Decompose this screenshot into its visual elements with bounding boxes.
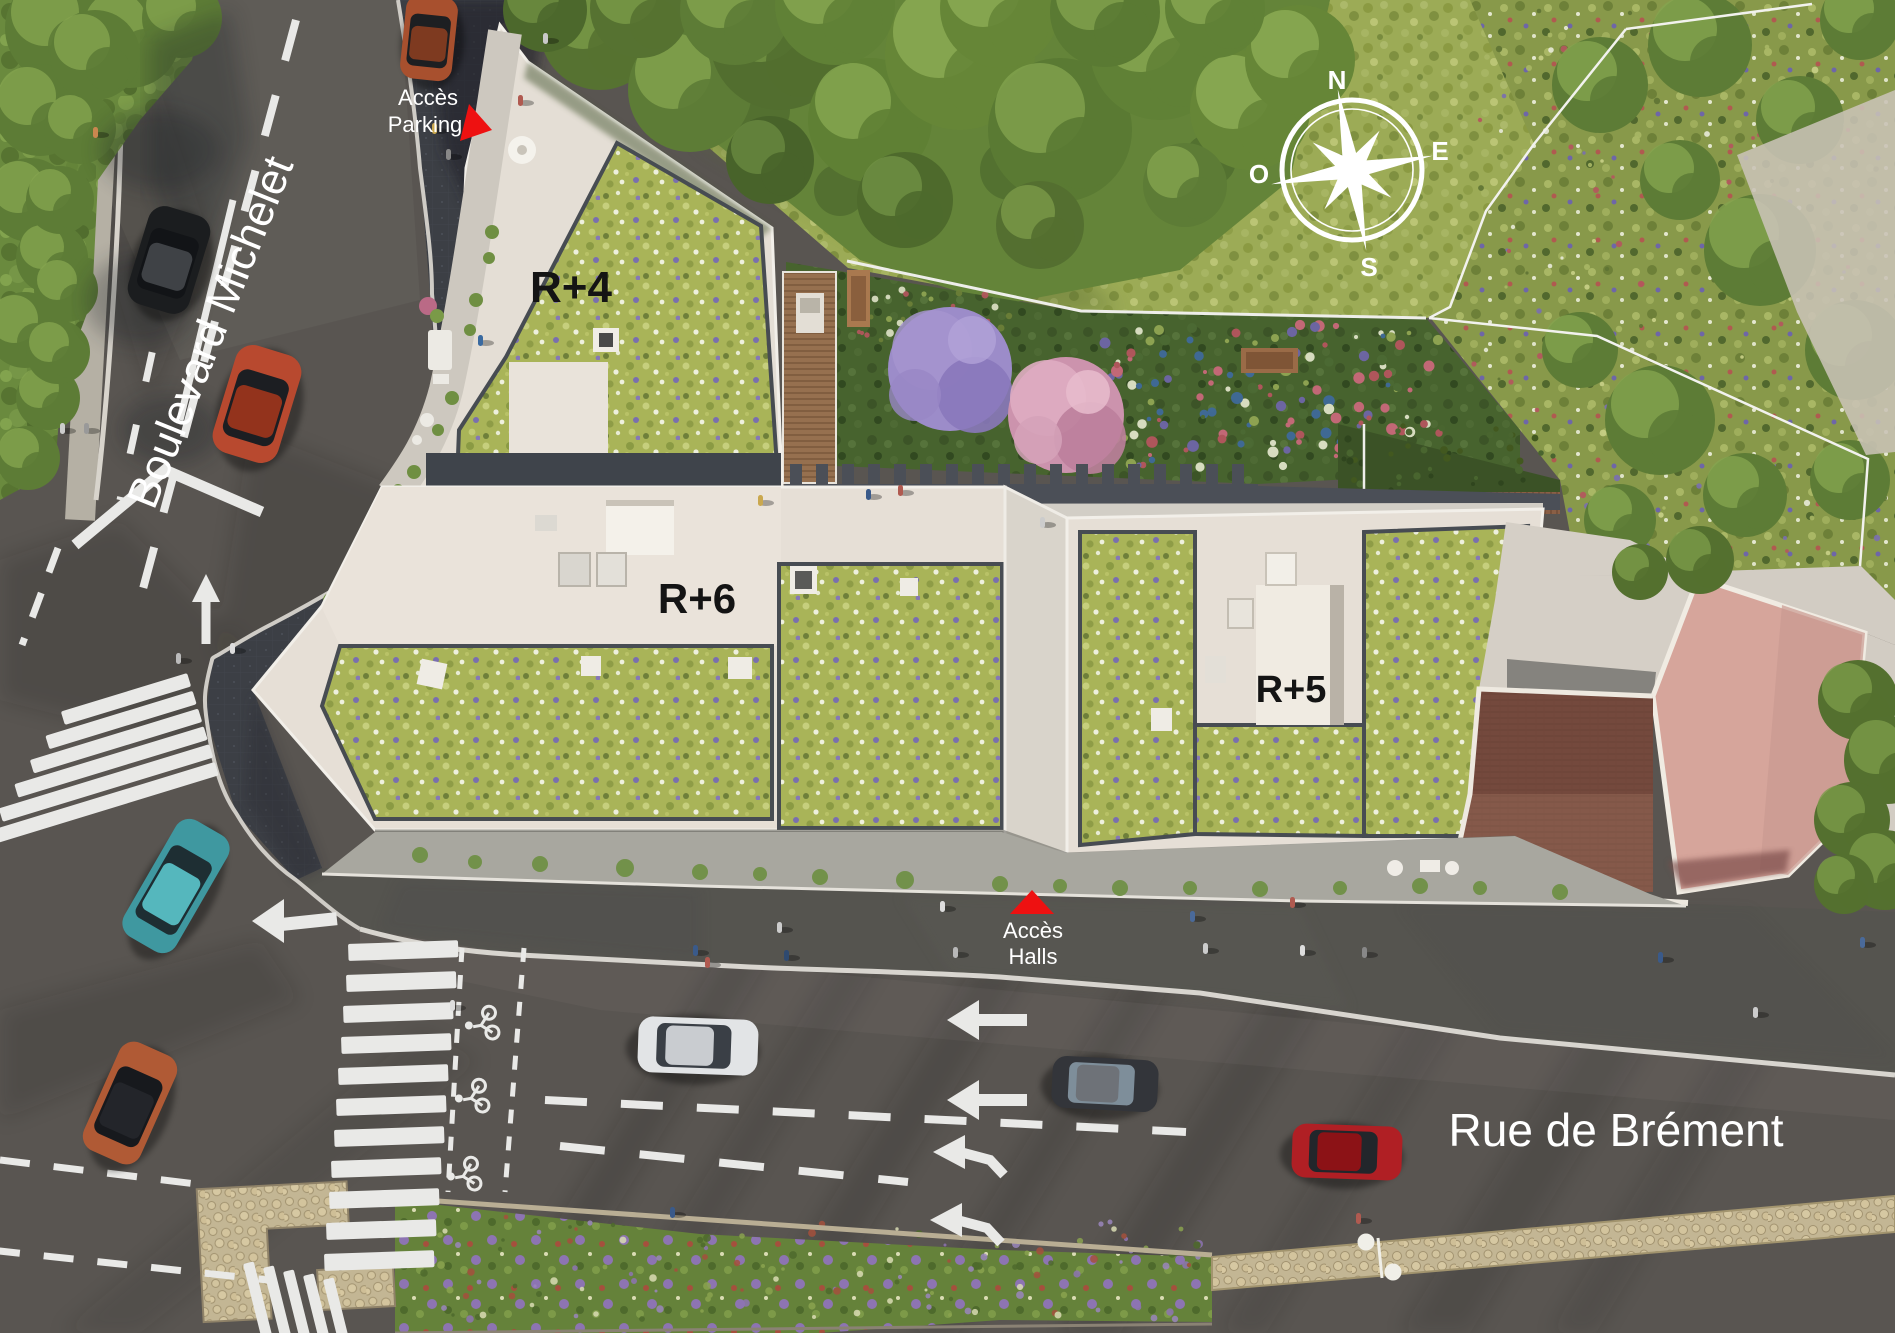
- svg-text:Halls: Halls: [1009, 944, 1058, 969]
- svg-text:Accès: Accès: [398, 85, 458, 110]
- svg-text:R+4: R+4: [530, 263, 612, 312]
- svg-text:O: O: [1249, 159, 1269, 189]
- svg-text:S: S: [1360, 252, 1377, 282]
- svg-text:R+6: R+6: [658, 575, 736, 622]
- svg-text:Accès: Accès: [1003, 918, 1063, 943]
- svg-text:Parking: Parking: [388, 112, 463, 137]
- svg-text:Rue de Brément: Rue de Brément: [1449, 1104, 1784, 1156]
- svg-text:N: N: [1328, 65, 1347, 95]
- svg-text:R+5: R+5: [1256, 669, 1327, 711]
- svg-text:E: E: [1431, 136, 1448, 166]
